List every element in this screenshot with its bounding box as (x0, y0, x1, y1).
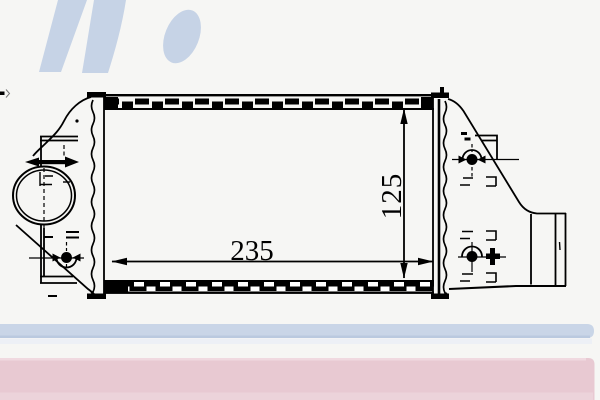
svg-text:125: 125 (376, 173, 408, 220)
svg-text:235: 235 (230, 235, 274, 267)
